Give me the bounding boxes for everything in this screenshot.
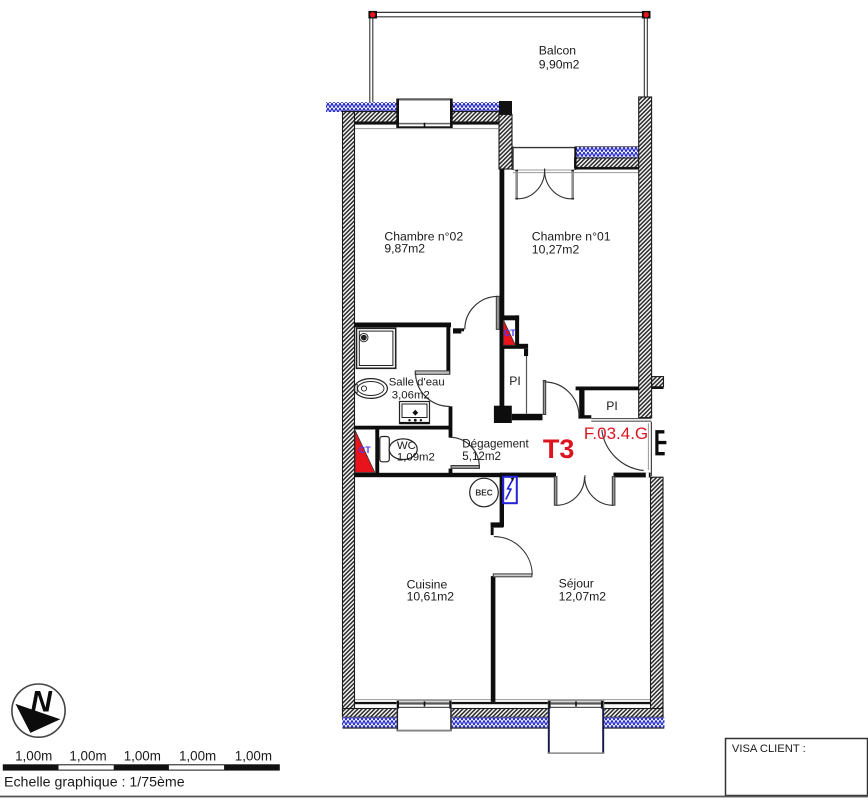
svg-text:Echelle graphique : 1/75ème: Echelle graphique : 1/75ème <box>4 775 185 791</box>
svg-text:WC: WC <box>397 440 416 452</box>
svg-text:3,06m2: 3,06m2 <box>392 389 430 401</box>
svg-text:CT: CT <box>504 328 516 338</box>
svg-text:Chambre n°01: Chambre n°01 <box>532 230 611 244</box>
svg-text:12,07m2: 12,07m2 <box>559 590 607 604</box>
svg-text:N: N <box>31 685 53 718</box>
svg-text:Balcon: Balcon <box>539 44 576 58</box>
svg-text:1,00m: 1,00m <box>179 748 216 763</box>
svg-text:CT: CT <box>359 445 371 455</box>
svg-text:T3: T3 <box>543 434 575 464</box>
svg-text:Salle d'eau: Salle d'eau <box>389 377 445 389</box>
svg-text:9,90m2: 9,90m2 <box>539 57 580 71</box>
svg-text:1,00m: 1,00m <box>69 748 106 763</box>
svg-text:1,00m: 1,00m <box>235 748 272 763</box>
svg-text:1,00m: 1,00m <box>15 748 52 763</box>
svg-text:5,12m2: 5,12m2 <box>462 450 501 463</box>
svg-text:1,09m2: 1,09m2 <box>397 452 435 464</box>
svg-text:Séjour: Séjour <box>559 577 594 591</box>
svg-text:VISA CLIENT :: VISA CLIENT : <box>732 743 806 755</box>
svg-text:F.03.4.G: F.03.4.G <box>584 424 648 443</box>
svg-text:1,00m: 1,00m <box>124 748 161 763</box>
svg-text:PI: PI <box>606 399 618 413</box>
svg-text:Dégagement: Dégagement <box>462 437 529 450</box>
svg-text:10,27m2: 10,27m2 <box>532 242 580 256</box>
svg-text:PI: PI <box>509 374 521 388</box>
svg-text:BEC: BEC <box>475 489 492 498</box>
svg-text:9,87m2: 9,87m2 <box>384 242 425 256</box>
svg-text:10,61m2: 10,61m2 <box>407 590 455 604</box>
